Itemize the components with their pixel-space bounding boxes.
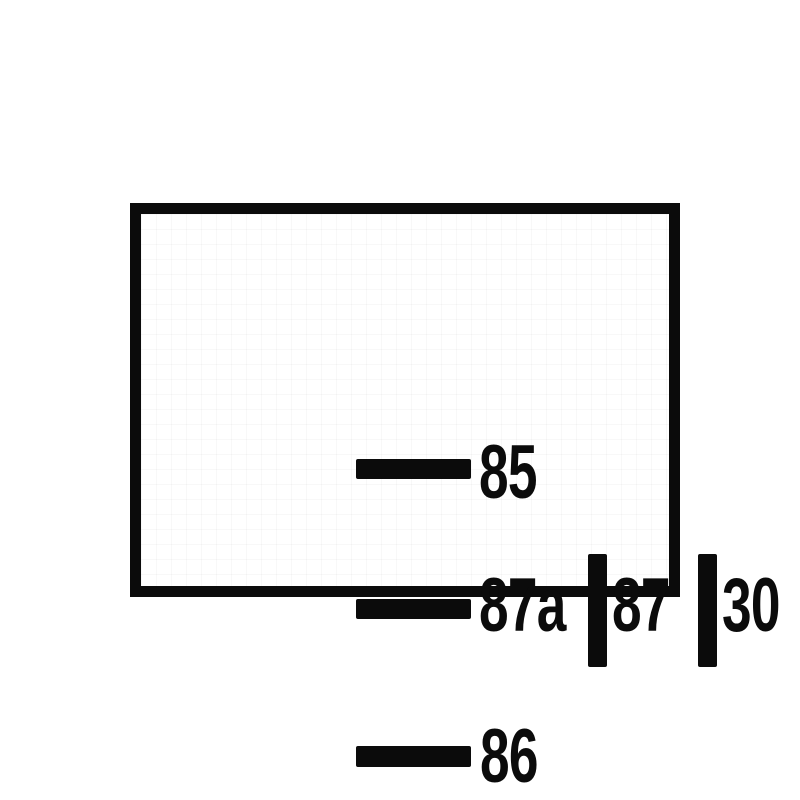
terminal-30-label: 30 (722, 568, 780, 644)
terminal-30-blade-icon (698, 554, 717, 667)
relay-outline-box: 85 87a 87 30 86 (130, 203, 680, 597)
terminal-86-blade-icon (356, 746, 471, 767)
terminal-86-label: 86 (480, 719, 538, 795)
terminal-87-label: 87 (612, 568, 670, 644)
terminal-85-label: 85 (479, 435, 537, 511)
terminal-87a-label: 87a (479, 568, 566, 644)
terminal-85-blade-icon (356, 459, 471, 479)
terminal-87-blade-icon (588, 554, 607, 667)
relay-pinout-diagram: 85 87a 87 30 86 (0, 0, 800, 800)
terminal-87a-blade-icon (356, 599, 471, 619)
